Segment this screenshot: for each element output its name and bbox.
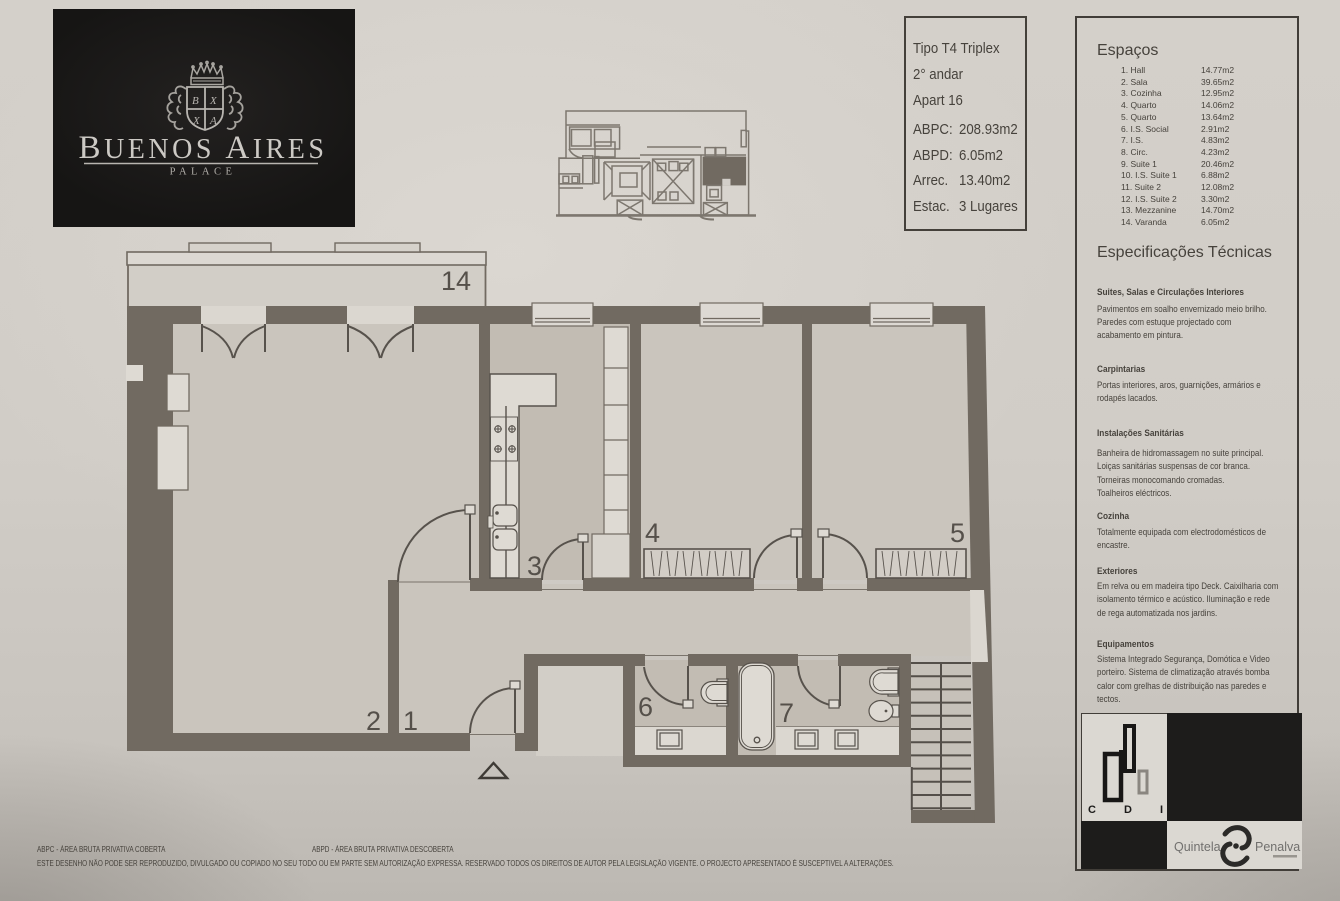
svg-text:5: 5 bbox=[950, 518, 965, 548]
svg-text:7: 7 bbox=[779, 698, 794, 728]
svg-text:14: 14 bbox=[441, 266, 471, 296]
svg-text:D: D bbox=[1124, 804, 1132, 816]
svg-text:Penalva: Penalva bbox=[1255, 840, 1300, 854]
svg-text:Quintela: Quintela bbox=[1174, 840, 1221, 854]
svg-text:1: 1 bbox=[403, 706, 418, 736]
svg-text:4: 4 bbox=[645, 518, 660, 548]
svg-text:6: 6 bbox=[638, 692, 653, 722]
svg-text:2: 2 bbox=[366, 706, 381, 736]
svg-text:3: 3 bbox=[527, 551, 542, 581]
svg-text:I: I bbox=[1160, 804, 1163, 816]
svg-text:C: C bbox=[1088, 804, 1096, 816]
